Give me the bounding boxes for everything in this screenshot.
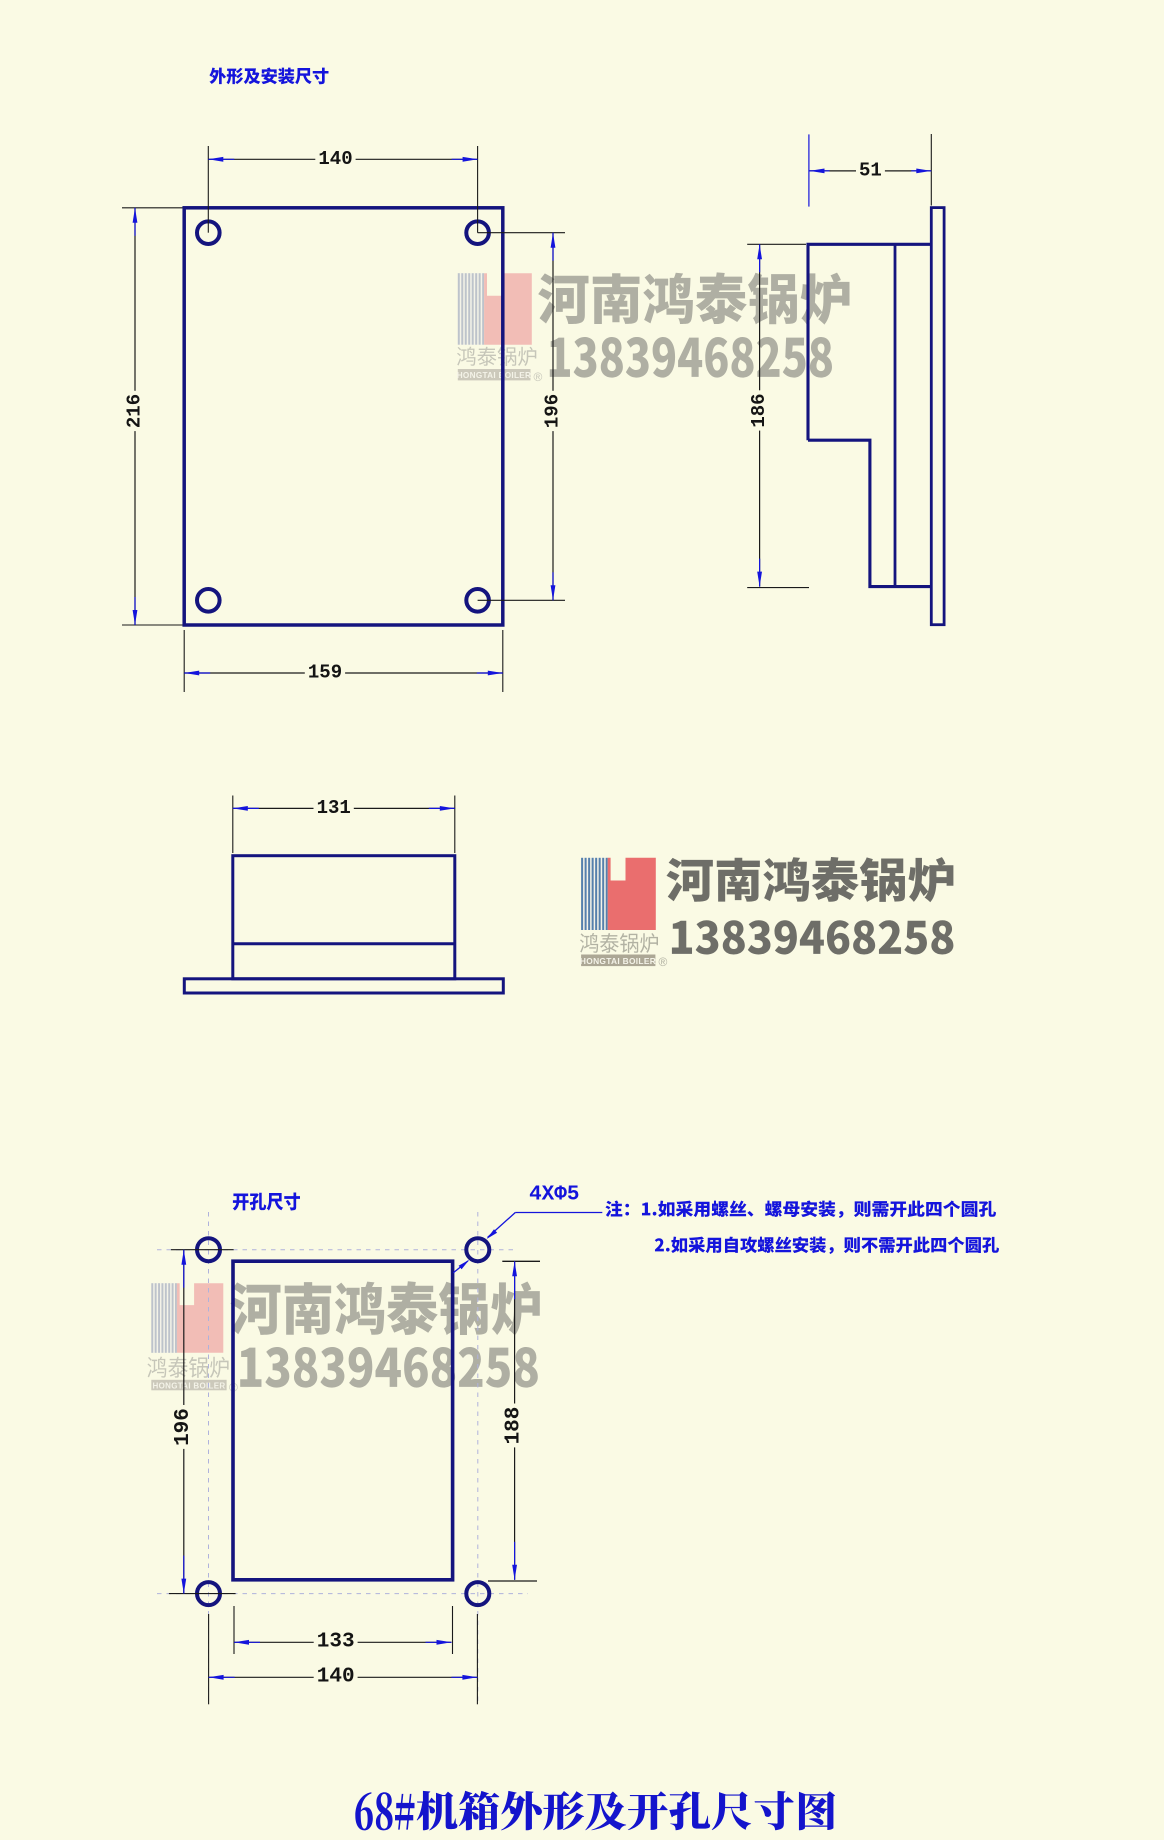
- svg-text:HONGTAI BOILER: HONGTAI BOILER: [580, 956, 656, 966]
- svg-text:131: 131: [317, 797, 351, 819]
- svg-text:4XΦ5: 4XΦ5: [529, 1184, 579, 1207]
- svg-text:HONGTAI BOILER: HONGTAI BOILER: [153, 1381, 226, 1390]
- svg-text:140: 140: [318, 148, 352, 170]
- svg-text:216: 216: [124, 394, 146, 428]
- svg-text:®: ®: [534, 370, 543, 384]
- svg-text:196: 196: [542, 394, 564, 428]
- svg-text:140: 140: [317, 1665, 355, 1688]
- svg-text:133: 133: [317, 1630, 355, 1653]
- svg-text:196: 196: [172, 1408, 195, 1446]
- svg-text:®: ®: [659, 955, 668, 969]
- svg-text:159: 159: [308, 662, 342, 684]
- svg-text:51: 51: [859, 160, 882, 182]
- svg-text:186: 186: [748, 393, 770, 427]
- svg-text:HONGTAI BOILER: HONGTAI BOILER: [457, 371, 532, 380]
- svg-text:188: 188: [503, 1407, 526, 1445]
